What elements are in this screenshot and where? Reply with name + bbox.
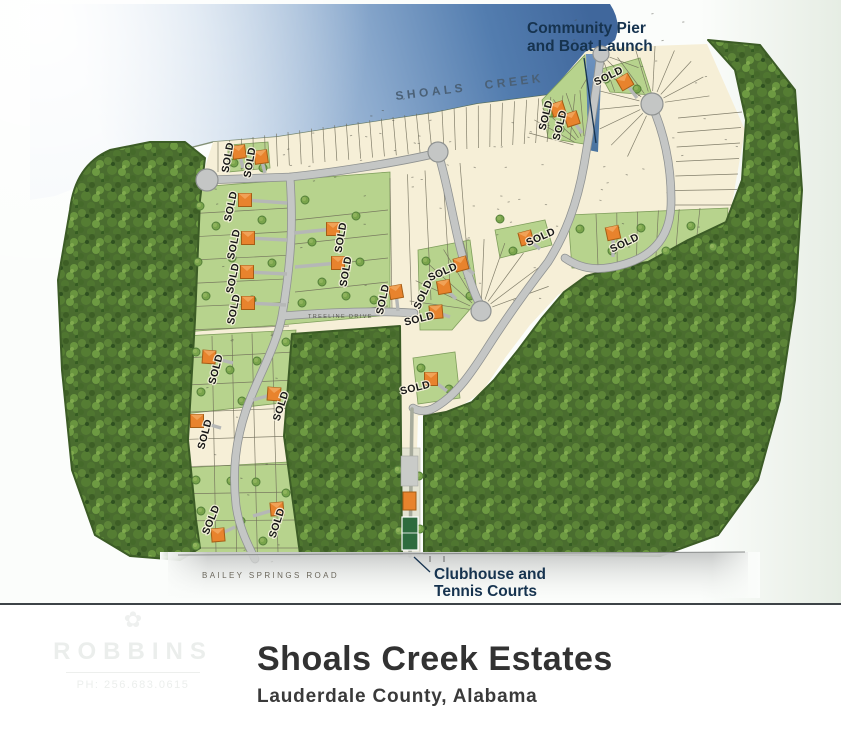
lot-dimension-mark (641, 66, 643, 67)
tree-icon (637, 224, 645, 232)
lot-dimension-mark (518, 199, 520, 200)
tree-icon (259, 537, 267, 545)
watermark-name: ROBBINS (48, 638, 218, 666)
tree-icon (192, 542, 200, 550)
parking-pad (401, 456, 418, 486)
tree-icon (252, 478, 260, 486)
culdesac-center (471, 301, 491, 321)
lot-dimension-mark (655, 60, 657, 61)
tree-icon (709, 243, 717, 251)
lot-dimension-mark (725, 139, 727, 140)
tree-icon (496, 215, 504, 223)
tree-icon (202, 292, 210, 300)
tree-icon (298, 299, 306, 307)
tree-icon (226, 366, 234, 374)
sold-house-icon (239, 194, 252, 207)
treeline-drive-label: TREELINE DRIVE (308, 314, 373, 320)
tree-icon (282, 338, 290, 346)
forest-center-mass (284, 326, 402, 554)
page-subtitle: Lauderdale County, Alabama (257, 686, 613, 708)
tennis-court (402, 517, 418, 550)
lot-dimension-mark (534, 267, 536, 268)
lot-dimension-mark (494, 146, 496, 147)
lot-dimension-mark (695, 82, 697, 83)
tree-icon (197, 388, 205, 396)
culdesac-west (196, 169, 218, 191)
lot-dimension-mark (505, 167, 507, 168)
culdesac-mid (428, 142, 448, 162)
tree-icon (308, 238, 316, 246)
clubhouse-callout-line2: Tennis Courts (434, 583, 537, 600)
tree-icon (662, 247, 670, 255)
lot-dimension-mark (539, 298, 541, 299)
lot-dimension-mark (421, 179, 423, 180)
lot-dimension-mark (215, 189, 217, 190)
title-block: Shoals Creek Estates Lauderdale County, … (257, 640, 613, 708)
tree-icon (356, 258, 364, 266)
bailey-road-label: BAILEY SPRINGS ROAD (202, 571, 339, 580)
tree-icon (422, 257, 430, 265)
separator-line (0, 603, 841, 605)
tree-icon (417, 364, 425, 372)
lot-dimension-mark (479, 283, 481, 284)
sold-house-icon (436, 279, 451, 294)
lot-dimension-mark (312, 133, 314, 134)
lot-dimension-mark (473, 206, 475, 207)
lot-dimension-mark (266, 464, 268, 465)
watermark-divider (66, 672, 200, 673)
sold-house-icon (241, 266, 254, 279)
sold-house-icon (242, 232, 255, 245)
sold-house-icon (605, 225, 620, 240)
tree-icon (192, 348, 200, 356)
lot-dimension-mark (698, 227, 700, 228)
plat-map-page: SOLDSOLDSOLDSOLDSOLDSOLDSOLDSOLDSOLDSOLD… (0, 0, 841, 731)
lot-dimension-mark (468, 237, 470, 238)
clubhouse-callout-line1: Clubhouse and (434, 566, 546, 583)
tree-icon (197, 507, 205, 515)
lot-dimension-mark (545, 204, 547, 205)
robbins-watermark: ✿ ROBBINS PH: 256.683.0615 (48, 610, 218, 691)
lot-dimension-mark (541, 164, 543, 165)
tree-icon (318, 278, 326, 286)
watermark-ornament-icon: ✿ (48, 610, 218, 630)
lot-dimension-mark (370, 115, 372, 116)
clubhouse-area (401, 456, 418, 550)
tree-icon (196, 202, 204, 210)
pier-callout-line2: and Boat Launch (527, 38, 653, 55)
tree-icon (687, 222, 695, 230)
tree-icon (192, 476, 200, 484)
tree-icon (268, 259, 276, 267)
tree-icon (576, 225, 584, 233)
tree-icon (258, 216, 266, 224)
tree-icon (301, 196, 309, 204)
page-title: Shoals Creek Estates (257, 640, 613, 679)
pier-callout-line1: Community Pier (527, 20, 646, 37)
tree-icon (194, 258, 202, 266)
tree-icon (253, 357, 261, 365)
tree-icon (509, 247, 517, 255)
sold-house-icon (242, 297, 255, 310)
tree-icon (212, 222, 220, 230)
tree-icon (352, 212, 360, 220)
lot-dimension-mark (278, 544, 280, 545)
clubhouse-building (403, 492, 416, 510)
tree-icon (342, 292, 350, 300)
lot-dimension-mark (364, 224, 366, 225)
tree-icon (282, 489, 290, 497)
lot-dimension-mark (672, 137, 674, 138)
culdesac-northeast (641, 93, 663, 115)
watermark-phone: PH: 256.683.0615 (48, 679, 218, 691)
